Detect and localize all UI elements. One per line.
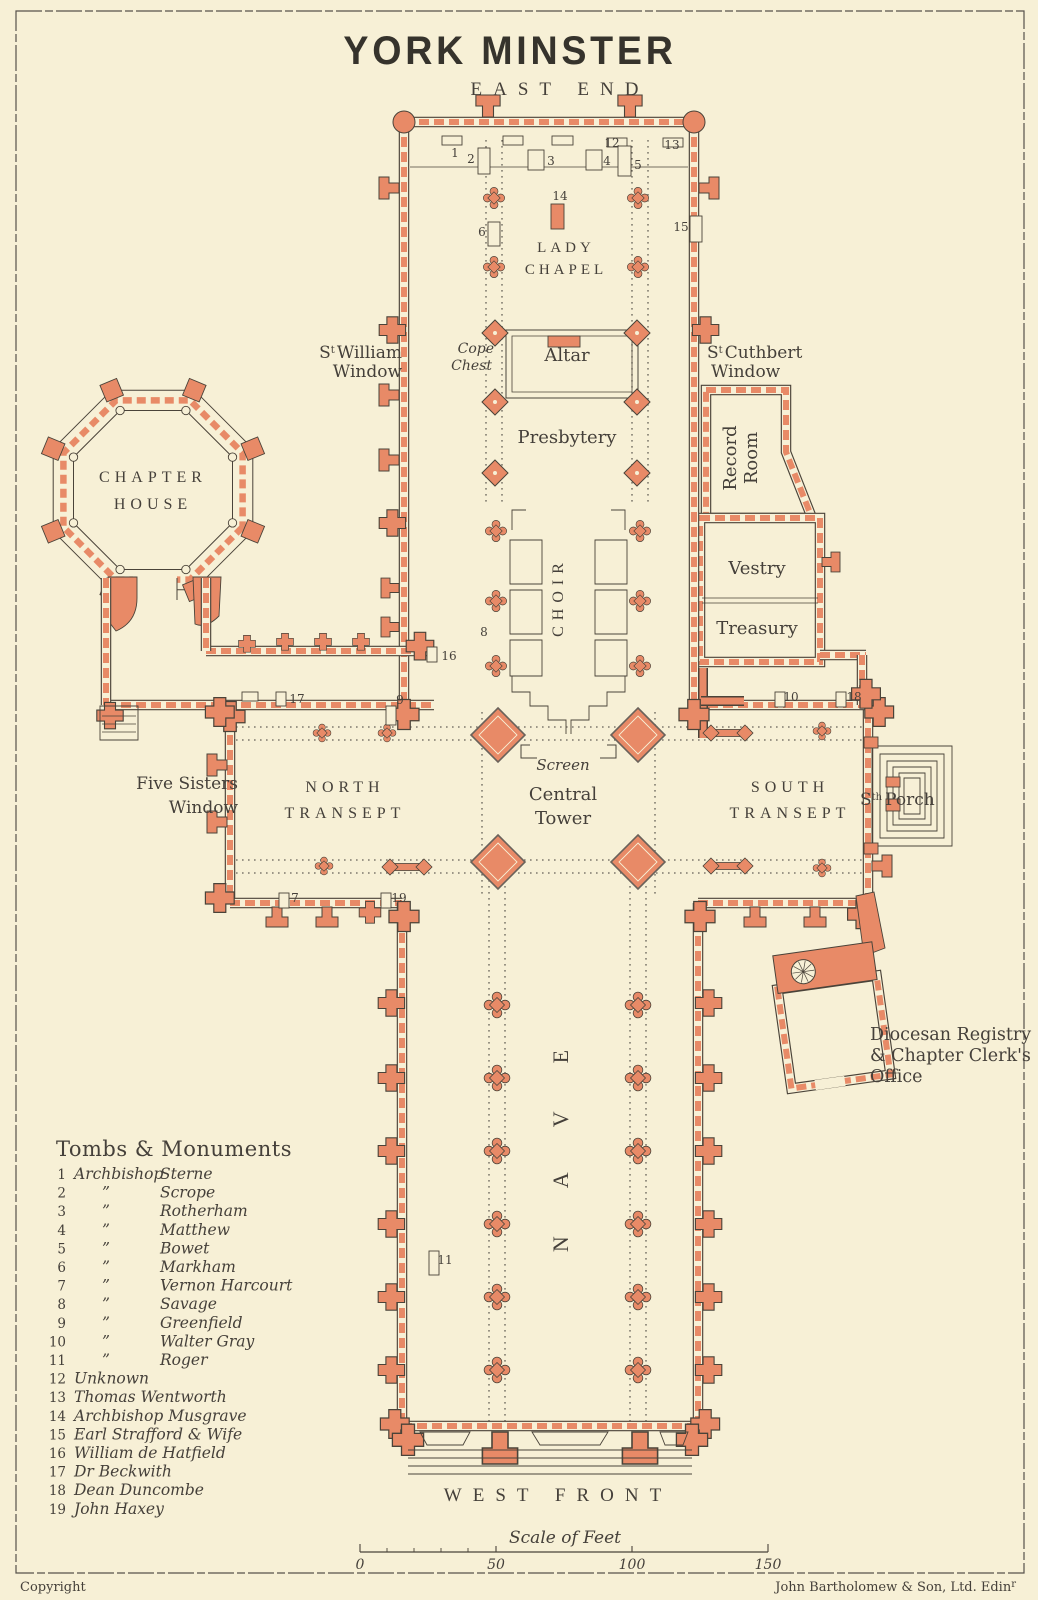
legend-item-5: ” <box>102 1239 110 1257</box>
chapter-house-shaft <box>69 453 77 461</box>
pillar-core <box>317 728 327 738</box>
pillar-core <box>631 1144 646 1159</box>
choir-entry <box>512 510 625 530</box>
pillar-quatrefoil <box>484 1284 510 1310</box>
legend-item-13: Thomas Wentworth <box>74 1388 227 1406</box>
pillar-quatrefoil <box>484 1138 510 1164</box>
legend-item-4: Matthew <box>159 1221 230 1239</box>
buttress-t <box>699 177 719 199</box>
pillar-twin-end <box>737 725 753 741</box>
pillar-core <box>631 998 646 1013</box>
st-william-window-label-2: Window <box>333 362 403 382</box>
pillar-quatrefoil <box>484 1357 510 1383</box>
pillar-quatrefoil <box>625 1065 651 1091</box>
legend-item-2: Scrope <box>160 1184 215 1202</box>
screen-label: Screen <box>536 756 589 774</box>
nave-label: NAVE <box>548 1002 573 1252</box>
legend-item-3: Rotherham <box>159 1202 248 1220</box>
monument-number-3: 3 <box>547 154 555 168</box>
legend-item-18: Dean Duncombe <box>73 1481 204 1499</box>
pillar-core <box>488 192 500 204</box>
monument-niche <box>618 146 631 176</box>
chapter-house-label-1: CHAPTER <box>99 469 207 486</box>
legend-item-3: ” <box>102 1202 110 1220</box>
pier-dot <box>635 331 639 335</box>
tomb-14-slab <box>551 204 564 229</box>
legend-item-12: Unknown <box>74 1370 149 1388</box>
wall-niche <box>552 136 573 145</box>
wall-niche <box>242 692 258 701</box>
monument-niche <box>276 692 286 706</box>
west-door-slab <box>532 1432 608 1445</box>
choir-stall <box>595 540 627 584</box>
pillar-core <box>490 525 502 537</box>
legend-item-2: 2 <box>57 1186 66 1202</box>
pillar-twin-end <box>737 858 753 874</box>
york-minster-floor-plan-page: YORK MINSTER EAST END WEST FRONT LADY CH… <box>0 0 1038 1600</box>
buttress-t <box>266 907 288 927</box>
st-cuthbert-window-label-2: Window <box>711 362 781 382</box>
pillar-core <box>490 1290 505 1305</box>
pillar-core <box>490 1217 505 1232</box>
legend-item-17: Dr Beckwith <box>73 1463 172 1481</box>
legend-item-10: ” <box>102 1332 110 1350</box>
wall-niche <box>503 136 523 145</box>
chapter-house-shaft <box>116 406 124 414</box>
legend-item-9: 9 <box>57 1316 66 1332</box>
record-room-label: Record Room <box>720 425 762 490</box>
legend-item-16: 16 <box>49 1446 66 1462</box>
vestry-treasury-walls <box>700 518 820 662</box>
legend-item-7: ” <box>102 1277 110 1295</box>
north-transept-label-1: NORTH <box>305 779 384 796</box>
monument-number-16: 16 <box>441 649 456 663</box>
pier-dot <box>493 331 497 335</box>
buttress-t <box>379 177 399 199</box>
copyright-label: Copyright <box>20 1580 87 1595</box>
buttress-t <box>379 449 399 471</box>
monument-number-14: 14 <box>552 189 568 203</box>
choir-stall <box>595 590 627 634</box>
choir-stall <box>510 540 542 584</box>
buttress-t <box>744 907 766 927</box>
chapter-house-shaft <box>69 519 77 527</box>
pillar-core <box>631 1217 646 1232</box>
legend-item-1: 1 <box>57 1167 66 1183</box>
pillar-core <box>632 261 644 273</box>
chapter-house-door-gap <box>133 576 177 600</box>
choir-stall <box>510 640 542 676</box>
monument-number-7: 7 <box>291 891 299 905</box>
central-tower-label-1: Central <box>529 784 598 805</box>
pillar-quatrefoil <box>629 590 650 611</box>
legend-item-8: ” <box>102 1295 110 1313</box>
legend-item-1: Archbishop <box>72 1165 163 1183</box>
pillar-core <box>490 1363 505 1378</box>
legend-item-6: ” <box>102 1258 110 1276</box>
legend-item-10: 10 <box>49 1334 66 1350</box>
pillar-core <box>632 192 644 204</box>
west-door-slab <box>420 1432 470 1445</box>
chapter-house-shaft <box>228 519 236 527</box>
pillar-quatrefoil <box>483 187 504 208</box>
chapter-house-shaft <box>182 565 190 573</box>
buttress-t <box>381 617 399 637</box>
monument-niche <box>836 692 846 707</box>
pillar-quatrefoil <box>629 520 650 541</box>
south-porch-pier <box>886 777 900 787</box>
buttress-t <box>804 907 826 927</box>
pillar-quatrefoil <box>813 722 831 740</box>
south-transept-label-1: SOUTH <box>751 779 829 796</box>
monument-niche <box>690 216 702 242</box>
treasury-label: Treasury <box>716 618 798 639</box>
cope-chest-label-2: Chest <box>451 358 492 374</box>
legend-item-16: William de Hatfield <box>74 1444 226 1462</box>
legend-item-19: John Haxey <box>71 1500 164 1518</box>
east-end-label: EAST END <box>471 79 650 100</box>
pillar-core <box>490 998 505 1013</box>
buttress-t <box>207 754 227 776</box>
cope-chest-label-1: Cope <box>458 341 494 357</box>
central-tower-label-2: Tower <box>535 808 592 829</box>
legend-item-3: 3 <box>57 1204 66 1220</box>
pillar-twin <box>382 859 432 875</box>
monument-number-10: 10 <box>783 690 798 704</box>
legend-item-8: 8 <box>57 1297 66 1313</box>
monument-number-11: 11 <box>437 1253 452 1267</box>
registry-label-1: Diocesan Registry <box>870 1025 1031 1045</box>
registry-label-2: & Chapter Clerk's <box>870 1046 1031 1066</box>
pillar-core <box>382 728 392 738</box>
legend-item-11: 11 <box>49 1353 66 1369</box>
buttress-t <box>381 578 399 598</box>
chapter-house-shaft <box>182 406 190 414</box>
legend-item-15: Earl Strafford & Wife <box>73 1425 242 1443</box>
pillar-twin-end <box>382 859 398 875</box>
scale-tick-100: 100 <box>619 1557 646 1573</box>
legend-item-11: ” <box>102 1351 110 1369</box>
monument-niche <box>478 148 490 174</box>
monument-number-12: 12 <box>604 136 619 150</box>
legend-item-12: 12 <box>49 1372 66 1388</box>
page-title: YORK MINSTER <box>343 29 676 73</box>
legend-item-9: ” <box>102 1314 110 1332</box>
pillar-quatrefoil <box>483 256 504 277</box>
pier-dot <box>635 471 639 475</box>
publisher-label: John Bartholomew & Son, Ltd. Edinr <box>773 1579 1016 1595</box>
scale-tick-0: 0 <box>356 1557 365 1573</box>
legend-item-13: 13 <box>49 1390 66 1406</box>
legend-item-6: Markham <box>159 1258 236 1276</box>
svg-text:Record: Record <box>720 425 741 490</box>
legend-item-10: Walter Gray <box>160 1332 255 1350</box>
pillar-quatrefoil <box>485 655 506 676</box>
legend-item-4: ” <box>102 1221 110 1239</box>
legend-item-15: 15 <box>49 1427 66 1443</box>
five-sisters-window-label-2: Window <box>169 798 239 818</box>
scale-label: Scale of Feet <box>509 1528 621 1548</box>
monument-number-13: 13 <box>664 138 679 152</box>
chapter-house-shaft <box>116 565 124 573</box>
legend-item-19: 19 <box>49 1502 66 1518</box>
pier-dot <box>493 471 497 475</box>
pillar-quatrefoil <box>627 187 648 208</box>
pillar-core <box>634 525 646 537</box>
legend-item-14: Archbishop Musgrave <box>72 1407 247 1425</box>
pillar-quatrefoil <box>625 1211 651 1237</box>
monument-number-15: 15 <box>673 220 688 234</box>
pillar-quatrefoil <box>484 1211 510 1237</box>
five-sisters-window-label-1: Five Sisters <box>136 774 238 794</box>
pillar-core <box>631 1290 646 1305</box>
pillar-core <box>490 1071 505 1086</box>
choir-steps <box>512 676 566 734</box>
monument-niche <box>586 150 602 170</box>
scale-tick-50: 50 <box>487 1557 505 1573</box>
legend-item-6: 6 <box>57 1260 66 1276</box>
pier-dot <box>493 400 497 404</box>
legend-item-2: ” <box>102 1184 110 1202</box>
pillar-core <box>631 1363 646 1378</box>
choir-stall <box>510 590 542 634</box>
legend-item-4: 4 <box>57 1223 66 1239</box>
legend-item-11: Roger <box>159 1351 209 1369</box>
monument-number-9: 9 <box>396 693 404 707</box>
monument-number-18: 18 <box>846 690 861 704</box>
legend-item-18: 18 <box>49 1483 66 1499</box>
legend-item-5: 5 <box>57 1241 66 1257</box>
pillar-core <box>631 1071 646 1086</box>
floor-plan-svg: YORK MINSTER EAST END WEST FRONT LADY CH… <box>0 0 1038 1600</box>
monument-number-5: 5 <box>634 158 642 172</box>
chapter-house-label-2: HOUSE <box>114 496 192 513</box>
legend-item-5: Bowet <box>159 1239 210 1257</box>
vestry-label: Vestry <box>727 558 786 579</box>
monument-number-1: 1 <box>451 146 459 160</box>
pillar-core <box>490 595 502 607</box>
monument-niche <box>381 893 391 908</box>
pillar-quatrefoil <box>315 857 333 875</box>
monument-number-19: 19 <box>391 891 406 905</box>
east-corner-pier <box>683 111 705 133</box>
south-transept-label-2: TRANSEPT <box>730 805 851 822</box>
buttress-t <box>482 1432 517 1464</box>
st-cuthbert-window-label-1: StCuthbert <box>707 343 802 363</box>
choir-steps <box>571 676 625 734</box>
legend-title: Tombs & Monuments <box>56 1137 292 1161</box>
buttress-t <box>316 907 338 927</box>
legend-item-17: 17 <box>49 1465 66 1481</box>
pillar-core <box>490 660 502 672</box>
monument-niche <box>488 222 500 246</box>
legend-item-7: 7 <box>57 1279 66 1295</box>
pillar-core <box>817 863 827 873</box>
legend-item-14: 14 <box>49 1409 66 1425</box>
scale-tick-150: 150 <box>755 1557 782 1573</box>
legend-item-9: Greenfield <box>160 1314 243 1332</box>
presbytery-label: Presbytery <box>518 427 618 448</box>
choir-label: CHOIR <box>550 557 567 637</box>
south-porch-label: SthPorch <box>860 790 935 810</box>
svg-text:Room: Room <box>741 432 762 484</box>
pillar-core <box>488 261 500 273</box>
choir-stall <box>595 640 627 676</box>
legend-list: 1ArchbishopSterne2”Scrope3”Rotherham4”Ma… <box>49 1165 293 1518</box>
buttress-t <box>379 384 399 406</box>
lady-chapel-label-2: CHAPEL <box>525 262 607 278</box>
pillar-quatrefoil <box>813 859 831 877</box>
monument-niche <box>386 706 396 725</box>
buttress-t <box>622 1432 657 1464</box>
pillar-quatrefoil <box>484 1065 510 1091</box>
monument-niche <box>427 647 437 662</box>
pillar-core <box>634 595 646 607</box>
pillar-core <box>634 660 646 672</box>
pier-dot <box>635 400 639 404</box>
pillar-quatrefoil <box>484 992 510 1018</box>
south-porch-pier <box>864 737 878 748</box>
monument-number-6: 6 <box>478 225 486 239</box>
buttress-t <box>872 855 892 877</box>
pillar-quatrefoil <box>627 256 648 277</box>
pillar-quatrefoil <box>625 1284 651 1310</box>
registry-label-3: Office <box>870 1067 923 1087</box>
monument-niche <box>528 150 544 170</box>
north-transept-label-2: TRANSEPT <box>285 805 406 822</box>
pillar-core <box>319 861 329 871</box>
legend-item-7: Vernon Harcourt <box>160 1277 293 1295</box>
west-front-label: WEST FRONT <box>444 1485 672 1506</box>
wall-niche <box>442 136 462 145</box>
pillar-quatrefoil <box>629 655 650 676</box>
lady-chapel-label-1: LADY <box>537 240 595 256</box>
monument-number-2: 2 <box>467 152 475 166</box>
south-porch-pier <box>864 843 878 854</box>
chapter-house-outer-wall <box>53 390 253 590</box>
pillar-quatrefoil <box>625 992 651 1018</box>
pillar-quatrefoil <box>625 1138 651 1164</box>
pillar-quatrefoil <box>313 724 331 742</box>
monument-number-8: 8 <box>480 625 488 639</box>
legend-item-1: Sterne <box>160 1165 213 1183</box>
altar-label: Altar <box>543 345 590 366</box>
pillar-quatrefoil <box>485 590 506 611</box>
st-william-window-label-1: StWilliam <box>319 343 402 363</box>
legend-item-8: Savage <box>160 1295 217 1313</box>
chapter-house-shaft <box>228 453 236 461</box>
monument-number-4: 4 <box>603 154 611 168</box>
pillar-core <box>490 1144 505 1159</box>
monument-niche <box>279 893 289 908</box>
pillar-quatrefoil <box>485 520 506 541</box>
monument-number-17: 17 <box>289 692 304 706</box>
pillar-quatrefoil <box>625 1357 651 1383</box>
east-corner-pier <box>393 111 415 133</box>
